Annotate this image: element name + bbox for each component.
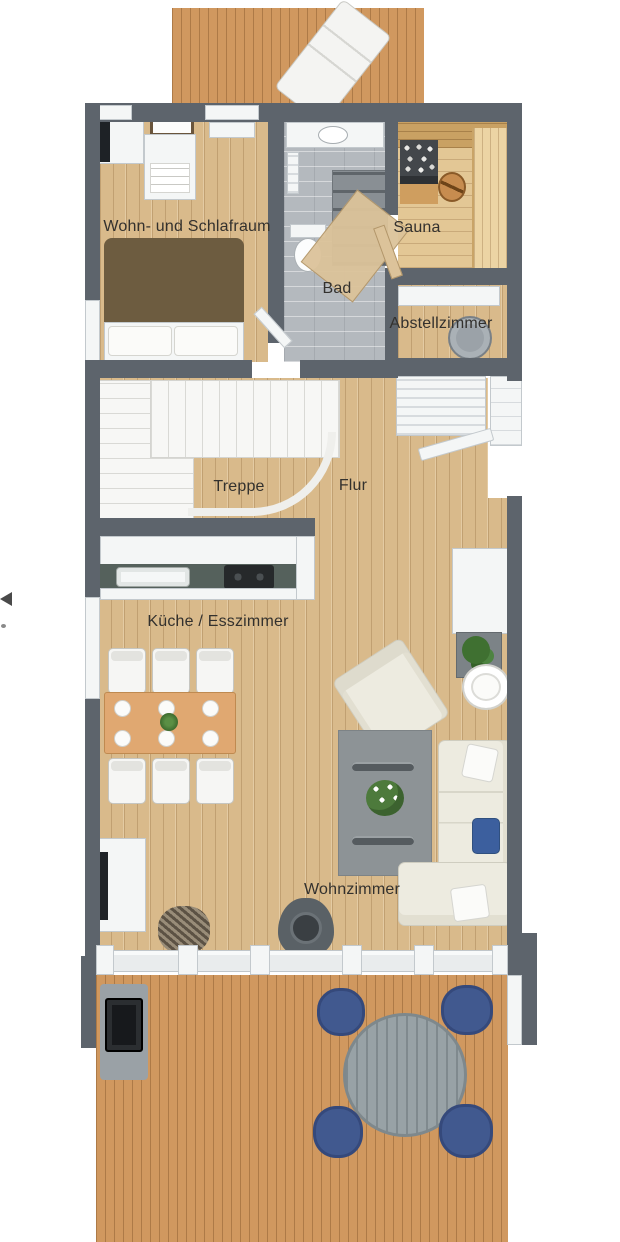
wall-bedroom-bottom-left <box>85 360 252 378</box>
window-mullion <box>96 945 114 975</box>
hall-tall-cabinet <box>452 548 510 634</box>
wall-left <box>85 103 100 975</box>
plate <box>202 730 219 747</box>
dining-chair <box>152 648 190 694</box>
room-label-living: Wohnzimmer <box>304 881 400 899</box>
dining-chair <box>108 648 146 694</box>
dining-chair <box>196 758 234 804</box>
room-label-storage: Abstellzimmer <box>389 315 492 333</box>
terrace-wall-right <box>522 933 537 1045</box>
wood-stove-top <box>290 912 322 944</box>
terrace-rail-right <box>507 975 522 1045</box>
terrace-chair <box>441 985 493 1035</box>
kitchen-counter-front <box>100 588 315 600</box>
plate <box>158 730 175 747</box>
window-mullion <box>342 945 362 975</box>
plate <box>114 730 131 747</box>
dining-chair <box>152 758 190 804</box>
hall-bench <box>396 376 486 436</box>
kitchen-counter-back <box>100 536 315 566</box>
window-mullion <box>250 945 270 975</box>
window-front-band <box>96 950 508 972</box>
terrace-chair <box>439 1104 493 1158</box>
wall-storage-bottom <box>385 358 522 376</box>
terrace-door-step <box>209 122 255 138</box>
room-label-hallway: Flur <box>339 477 367 495</box>
terrace-wall-left <box>81 956 96 1048</box>
wall-right-upper <box>507 103 522 381</box>
vanity-sink <box>318 126 348 144</box>
plate <box>114 700 131 717</box>
sauna-heater-base <box>400 176 438 184</box>
window-mullion <box>492 945 508 975</box>
table-flowers <box>366 780 404 816</box>
bed-blanket <box>104 238 244 324</box>
plate <box>202 700 219 717</box>
sofa-blue-cushion <box>472 818 500 854</box>
terrace-chair <box>317 988 365 1036</box>
dining-chair <box>196 648 234 694</box>
side-table-round <box>462 664 510 710</box>
sauna-bucket <box>438 172 466 202</box>
window-mullion <box>178 945 198 975</box>
left-edge-marker-icon <box>0 592 12 606</box>
terrace-chair <box>313 1106 363 1158</box>
bath-radiator <box>287 152 299 194</box>
grill <box>105 998 143 1052</box>
bed-pillow-right <box>174 326 238 356</box>
dining-chair <box>108 758 146 804</box>
room-label-kitchen: Küche / Esszimmer <box>147 613 288 631</box>
coffee-table-edge <box>352 836 414 845</box>
floorplan-canvas: Wohn- und Schlafraum Sauna Bad Abstellzi… <box>0 0 620 1242</box>
window-left-kitchen <box>85 597 100 699</box>
wall-sauna-bottom <box>385 268 522 285</box>
room-label-sauna: Sauna <box>393 219 440 237</box>
wall-bathroom-sauna <box>385 103 398 215</box>
sauna-bench-left <box>400 184 438 204</box>
room-label-bedroom: Wohn- und Schlafraum <box>103 218 270 236</box>
coffee-table-edge <box>352 762 414 771</box>
kitchen-counter-endcap <box>296 536 315 600</box>
left-edge-marker-dot <box>1 624 6 628</box>
sauna-heater-stones <box>400 140 438 176</box>
wall-top <box>85 103 522 122</box>
window-mullion <box>414 945 434 975</box>
kitchen-back-wall <box>85 518 315 537</box>
sauna-bench-right <box>472 128 507 268</box>
table-plant <box>160 713 178 731</box>
kitchen-stove <box>224 565 274 589</box>
storage-shelf <box>398 286 500 306</box>
bed-pillow-left <box>108 326 172 356</box>
room-label-bathroom: Bad <box>322 280 351 298</box>
entry-landing <box>490 376 522 446</box>
wall-bedroom-bottom-right <box>300 360 385 378</box>
planter-plant <box>462 636 490 664</box>
sofa-pillow <box>450 884 490 923</box>
kitchen-sink <box>116 567 190 587</box>
bedroom-dresser <box>144 134 196 200</box>
terrace-door-top <box>205 105 259 120</box>
room-label-stairs: Treppe <box>213 478 264 496</box>
wall-right-lower <box>507 496 522 975</box>
